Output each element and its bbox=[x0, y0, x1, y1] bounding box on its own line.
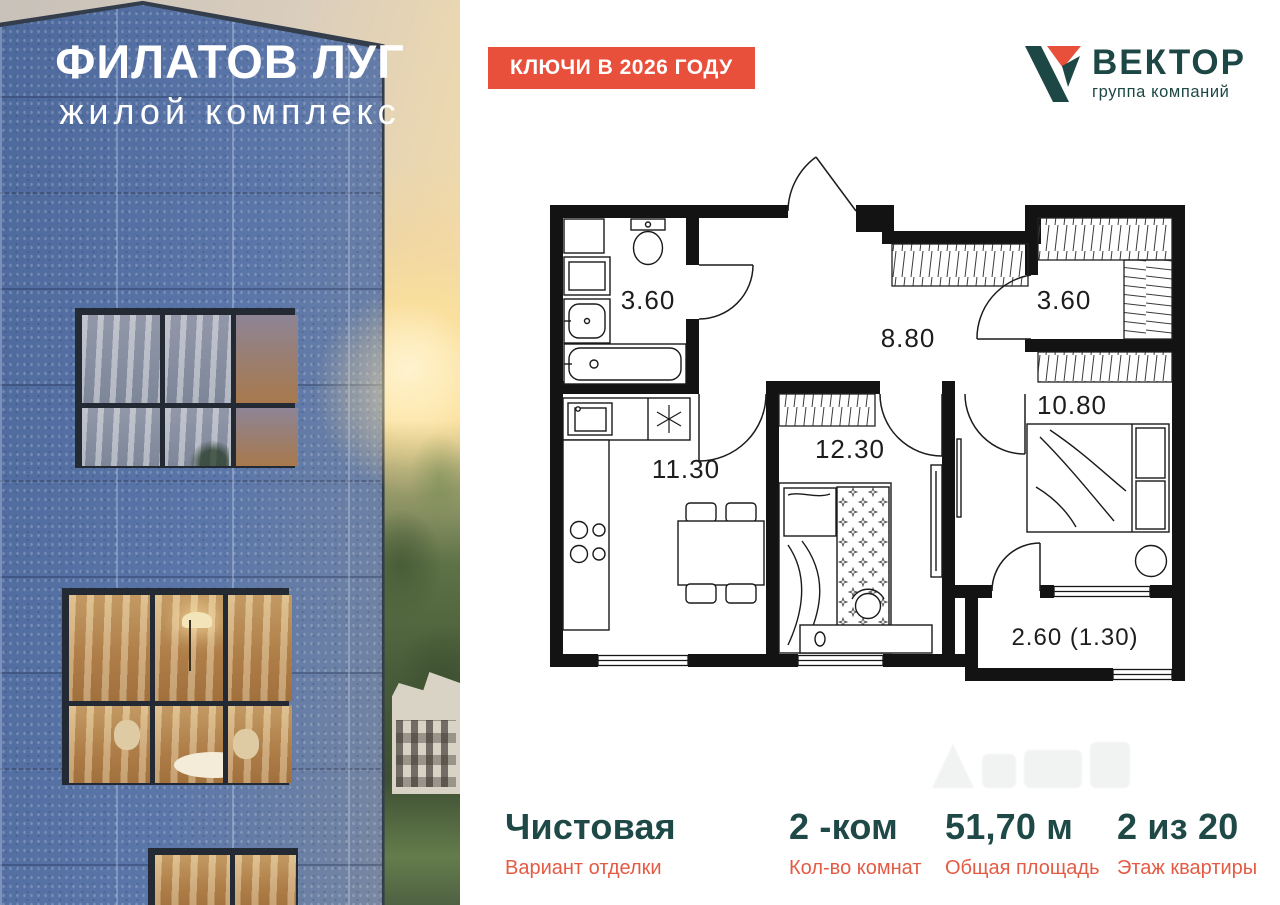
chair-icon bbox=[686, 503, 716, 522]
keys-date-badge-label: КЛЮЧИ В 2026 ГОДУ bbox=[510, 56, 733, 80]
stat-area-value: 51,70 м bbox=[945, 806, 1100, 848]
window-pane bbox=[165, 408, 231, 466]
developer-logo: ВЕКТОР группа компаний bbox=[1022, 44, 1246, 104]
room-label-hallway: 8.80 bbox=[881, 323, 936, 353]
window-pane bbox=[236, 408, 298, 466]
stat-floor-label: Этаж квартиры bbox=[1117, 857, 1257, 880]
logo-name: ВЕКТОР bbox=[1092, 44, 1246, 82]
room-label-wardrobe: 3.60 bbox=[1037, 285, 1092, 315]
stat-area-label: Общая площадь bbox=[945, 857, 1100, 880]
window-pane bbox=[82, 408, 160, 466]
pillow-icon bbox=[1136, 481, 1165, 529]
floor-plan: 3.60 8.80 3.60 11.30 12.30 10.80 2.60 (1… bbox=[548, 147, 1188, 693]
stat-area: 51,70 м Общая площадь bbox=[945, 806, 1100, 880]
table-icon bbox=[678, 521, 764, 585]
floor-lamp-icon bbox=[182, 612, 212, 628]
window-pane bbox=[69, 595, 150, 701]
stat-finish-value: Чистовая bbox=[505, 806, 676, 848]
watermark bbox=[932, 736, 1150, 790]
neighbor-building-windows bbox=[396, 720, 456, 787]
plant-silhouette bbox=[189, 440, 229, 466]
window-pane bbox=[82, 315, 160, 403]
chair-silhouette bbox=[233, 729, 259, 759]
window-pane bbox=[236, 315, 298, 403]
room-label-bedroom-2: 10.80 bbox=[1037, 390, 1107, 420]
closet-hatching bbox=[779, 218, 1172, 426]
neighbor-building bbox=[392, 672, 460, 794]
stat-finish-label: Вариант отделки bbox=[505, 857, 676, 880]
logo-tagline: группа компаний bbox=[1092, 83, 1246, 102]
project-title-block: ФИЛАТОВ ЛУГ жилой комплекс bbox=[0, 34, 460, 133]
apartment-stats: Чистовая Вариант отделки 2 -ком Кол-во к… bbox=[0, 806, 1280, 896]
chair-icon bbox=[686, 584, 716, 603]
bath-shelf-icon bbox=[564, 219, 604, 253]
room-label-bedroom: 12.30 bbox=[815, 434, 885, 464]
toilet-bowl-icon bbox=[634, 232, 663, 265]
stat-rooms-label: Кол-во комнат bbox=[789, 857, 921, 880]
stat-finish: Чистовая Вариант отделки bbox=[505, 806, 676, 880]
stat-floor-value: 2 из 20 bbox=[1117, 806, 1257, 848]
tv-icon bbox=[957, 439, 961, 517]
facade-window-upper bbox=[75, 308, 295, 468]
room-label-kitchen: 11.30 bbox=[652, 454, 720, 484]
dining-table-silhouette bbox=[174, 752, 223, 778]
project-title: ФИЛАТОВ ЛУГ bbox=[0, 34, 460, 89]
vector-logo-icon bbox=[1022, 44, 1082, 104]
project-subtitle: жилой комплекс bbox=[0, 91, 460, 133]
floor-plan-drawing: 3.60 8.80 3.60 11.30 12.30 10.80 2.60 (1… bbox=[548, 147, 1188, 693]
floor-lamp-pole bbox=[189, 620, 191, 671]
window-pane bbox=[155, 706, 223, 783]
room-label-balcony: 2.60 (1.30) bbox=[1011, 624, 1138, 651]
keys-date-badge: КЛЮЧИ В 2026 ГОДУ bbox=[488, 47, 755, 89]
logo-text: ВЕКТОР группа компаний bbox=[1092, 44, 1246, 102]
stool-icon bbox=[856, 594, 881, 619]
listing-card: ФИЛАТОВ ЛУГ жилой комплекс КЛЮЧИ В 2026 … bbox=[0, 0, 1280, 905]
sun-flare bbox=[310, 280, 460, 500]
window-pane bbox=[228, 706, 292, 783]
chair-icon bbox=[726, 584, 756, 603]
stat-rooms-value: 2 -ком bbox=[789, 806, 921, 848]
stat-rooms: 2 -ком Кол-во комнат bbox=[789, 806, 921, 880]
pouf-icon bbox=[1136, 546, 1167, 577]
chair-icon bbox=[726, 503, 756, 522]
window-pane bbox=[165, 315, 231, 403]
stat-floor: 2 из 20 Этаж квартиры bbox=[1117, 806, 1257, 880]
window-pane bbox=[69, 706, 150, 783]
window-pane bbox=[228, 595, 292, 701]
chair-silhouette bbox=[114, 720, 140, 750]
building-photo: ФИЛАТОВ ЛУГ жилой комплекс bbox=[0, 0, 460, 905]
room-label-bathroom: 3.60 bbox=[621, 285, 676, 315]
pillow-icon bbox=[1136, 428, 1165, 478]
facade-window-lit bbox=[62, 588, 289, 785]
window-pane bbox=[155, 595, 223, 701]
